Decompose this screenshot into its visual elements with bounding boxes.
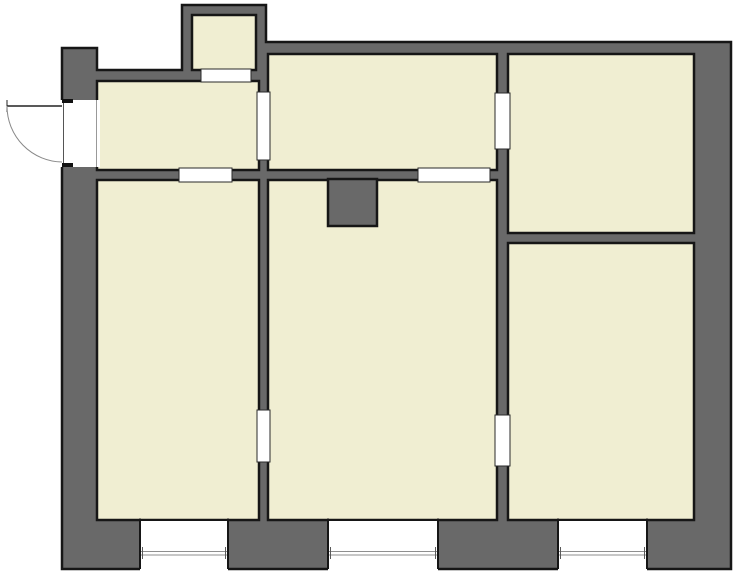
floor-top-small-room [192,15,256,70]
door-top-middle-to-top-right [495,93,510,149]
door-top-middle-to-bottom-middle [418,168,490,182]
chimney-block [328,179,377,226]
floor-plan [0,0,736,572]
entry-door-gap [60,100,100,167]
floor-plan-page [0,0,736,572]
door-bottom-left-to-bottom-middle [257,410,270,462]
window-bottom-right [558,521,647,572]
door-entry-to-bottom-left [179,168,232,182]
floor-top-right-room [508,54,694,233]
door-bottom-middle-to-bottom-right [495,415,510,466]
floor-bottom-right-room [508,243,694,520]
window-bottom-left [140,521,228,572]
floor-bottom-left-room [97,180,259,520]
entry-door-jamb-top [62,99,73,103]
window-bottom-middle [328,521,438,572]
opening-top-small-to-entry [201,69,251,82]
floor-top-middle-room [268,54,497,170]
door-entry-to-top-middle [257,92,270,160]
floor-entry-hall [97,81,259,170]
floor-bottom-middle-room [268,180,497,520]
entry-door-jamb-bottom [62,163,73,167]
